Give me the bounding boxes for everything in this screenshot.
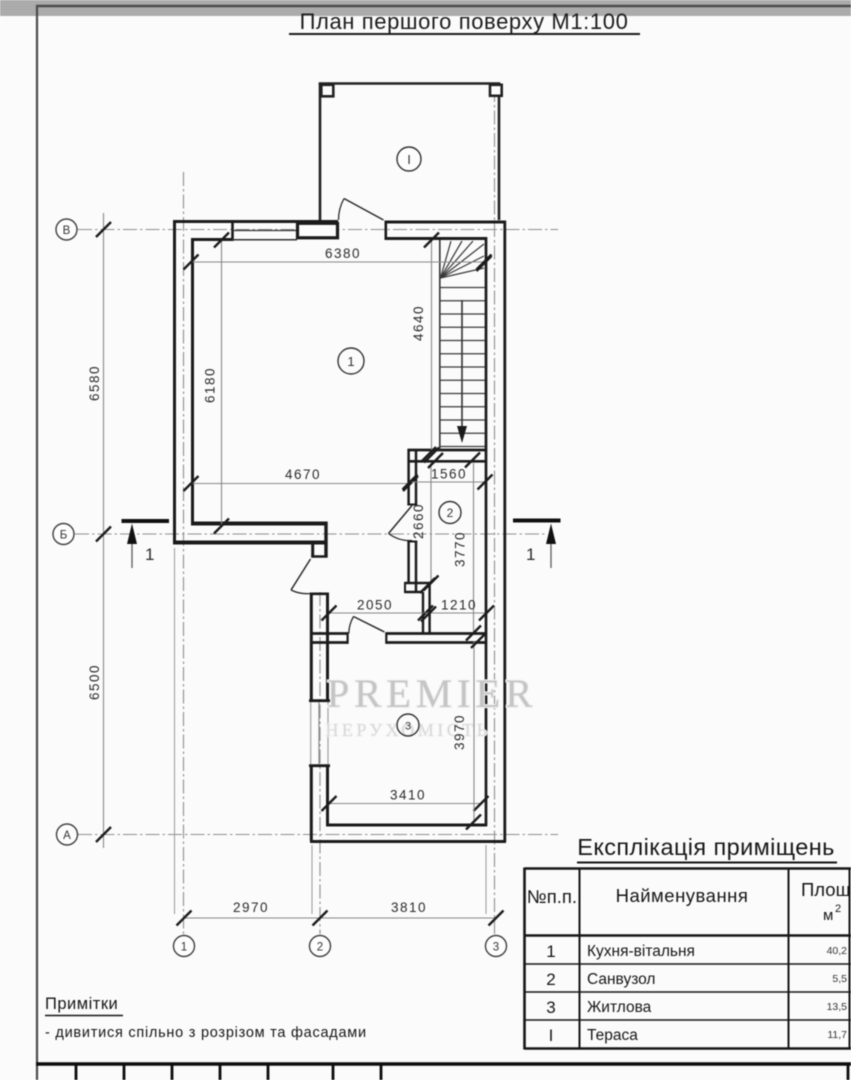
svg-text:3810: 3810 <box>391 900 427 915</box>
svg-text:№п.п.: №п.п. <box>527 886 577 907</box>
svg-text:А: А <box>63 830 71 842</box>
svg-text:1560: 1560 <box>431 467 467 482</box>
svg-text:5,5: 5,5 <box>832 973 847 985</box>
svg-text:3410: 3410 <box>390 788 426 803</box>
svg-text:6500: 6500 <box>87 664 102 700</box>
svg-text:Житлова: Житлова <box>587 999 652 1016</box>
svg-text:Санвузол: Санвузол <box>587 971 655 988</box>
svg-text:6180: 6180 <box>203 367 218 403</box>
svg-text:2660: 2660 <box>411 503 426 539</box>
svg-text:PREMIER: PREMIER <box>327 671 538 716</box>
svg-text:Площа: Площа <box>801 879 851 900</box>
svg-text:В: В <box>63 225 71 237</box>
svg-text:1: 1 <box>526 545 535 564</box>
svg-text:3770: 3770 <box>453 531 468 567</box>
svg-text:План першого поверху М1:100: План першого поверху М1:100 <box>300 9 629 34</box>
svg-text:Кухня-вітальня: Кухня-вітальня <box>587 943 695 960</box>
svg-text:2970: 2970 <box>233 900 269 915</box>
svg-text:- дивитися спільно з розрізом: - дивитися спільно з розрізом та фасадам… <box>45 1025 367 1041</box>
svg-text:1: 1 <box>181 942 187 954</box>
svg-text:2: 2 <box>317 942 323 954</box>
svg-text:Експлікація приміщень: Експлікація приміщень <box>577 834 835 860</box>
svg-text:6580: 6580 <box>87 365 102 401</box>
svg-text:3: 3 <box>546 998 555 1017</box>
svg-text:Тераса: Тераса <box>587 1027 638 1044</box>
svg-text:1210: 1210 <box>441 598 477 613</box>
svg-text:м: м <box>823 907 833 924</box>
svg-text:6380: 6380 <box>325 246 361 261</box>
svg-text:1: 1 <box>347 354 354 369</box>
svg-text:Найменування: Найменування <box>616 885 749 906</box>
svg-text:Б: Б <box>60 530 68 542</box>
svg-text:11,7: 11,7 <box>827 1029 847 1041</box>
svg-text:Примітки: Примітки <box>45 995 118 1013</box>
svg-text:3970: 3970 <box>452 714 467 750</box>
svg-text:2: 2 <box>546 970 555 989</box>
svg-text:I: I <box>549 1026 554 1045</box>
svg-text:13,5: 13,5 <box>827 1001 848 1013</box>
svg-text:2050: 2050 <box>357 598 393 613</box>
svg-text:1: 1 <box>546 942 555 961</box>
svg-text:3: 3 <box>405 721 411 733</box>
svg-text:2: 2 <box>835 903 841 915</box>
svg-text:3: 3 <box>493 942 499 954</box>
svg-text:I: I <box>407 152 411 167</box>
svg-text:2: 2 <box>447 506 454 520</box>
svg-text:4670: 4670 <box>285 467 321 482</box>
svg-text:40,2: 40,2 <box>827 945 848 957</box>
svg-text:1: 1 <box>145 545 154 564</box>
svg-text:4640: 4640 <box>411 305 426 341</box>
